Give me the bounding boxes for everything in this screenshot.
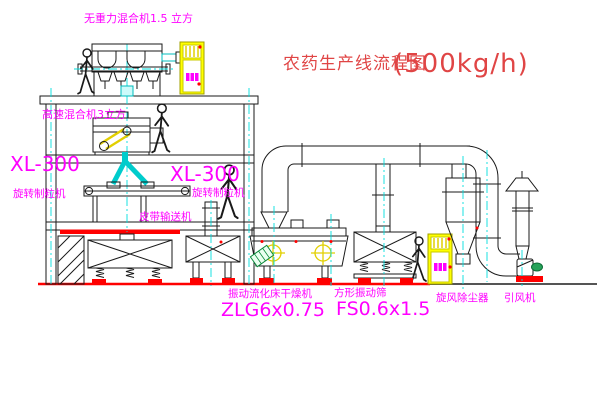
fan-icon xyxy=(516,250,543,286)
label-dryer-model: ZLG6x0.75 xyxy=(221,299,325,321)
label-induced-fan: 引风机 xyxy=(504,291,536,304)
vibrating-feeder-machine xyxy=(186,200,240,286)
label-granulator-left-name: 旋转制粒机 xyxy=(13,187,66,200)
cad-drawing-canvas: 无重力混合机1.5 立方 高速混合机3立方 XL-300 旋转制粒机 XL-30… xyxy=(0,0,600,403)
cad-drawing-page: 无重力混合机1.5 立方 高速混合机3立方 XL-300 旋转制粒机 XL-30… xyxy=(0,0,600,403)
label-gravity-mixer: 无重力混合机1.5 立方 xyxy=(84,11,193,25)
label-belt-conveyor: 皮带输送机 xyxy=(139,210,192,223)
side-nozzle xyxy=(162,54,176,61)
label-square-sieve-model: FS0.6x1.5 xyxy=(336,298,430,320)
hatched-support-block xyxy=(58,236,84,284)
label-high-speed-mixer: 高速混合机3立方 xyxy=(42,107,126,121)
label-cyclone: 旋风除尘器 xyxy=(436,291,489,304)
exhaust-duct-piping xyxy=(262,143,520,282)
control-cabinet-icon xyxy=(428,234,452,284)
label-granulator-mid-name: 旋转制粒机 xyxy=(192,186,245,199)
fan-base xyxy=(516,276,543,282)
discharge-chute xyxy=(121,86,133,96)
y-discharge-chute xyxy=(107,152,154,188)
drawing-title-capacity: (500kg/h) xyxy=(393,49,529,79)
square-sieve-machine xyxy=(354,158,416,286)
fluid-bed-dryer-machine xyxy=(250,206,348,286)
vibrating-sieve-machine xyxy=(58,234,172,284)
label-granulator-left-model: XL-300 xyxy=(10,152,80,176)
control-cabinet-icon xyxy=(180,42,204,94)
fan-motor xyxy=(532,263,543,271)
floor-red-marking xyxy=(60,230,180,235)
exhaust-stack-icon xyxy=(506,171,538,259)
person-icon xyxy=(410,237,426,282)
label-granulator-mid-model: XL-300 xyxy=(170,162,240,186)
